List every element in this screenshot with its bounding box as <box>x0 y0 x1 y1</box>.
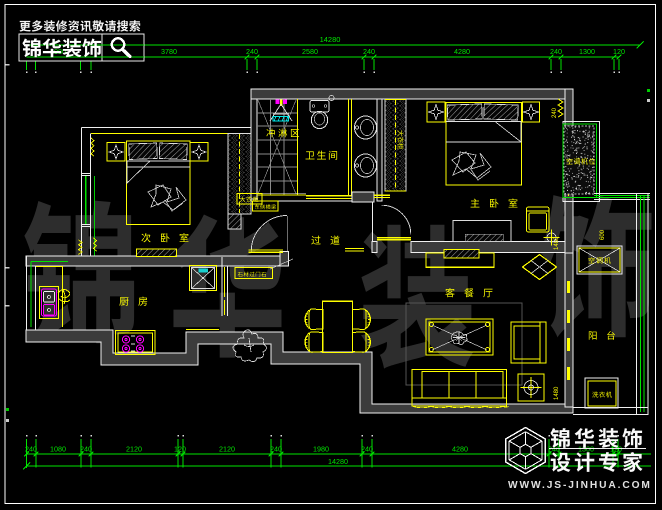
svg-text:120: 120 <box>613 47 625 56</box>
svg-text:240: 240 <box>361 445 373 454</box>
svg-text:2120: 2120 <box>219 445 235 454</box>
svg-text:240: 240 <box>25 445 37 454</box>
svg-text:240: 240 <box>246 47 258 56</box>
svg-text:120: 120 <box>174 445 186 454</box>
svg-text:240: 240 <box>552 107 558 118</box>
svg-text:WWW.JS-JINHUA.COM: WWW.JS-JINHUA.COM <box>508 480 652 491</box>
svg-text:14280: 14280 <box>328 457 348 466</box>
svg-text:2120: 2120 <box>126 445 142 454</box>
svg-text:4280: 4280 <box>454 47 470 56</box>
svg-text:3780: 3780 <box>161 47 177 56</box>
svg-text:240: 240 <box>363 47 375 56</box>
svg-text:240: 240 <box>80 445 92 454</box>
svg-text:600: 600 <box>600 229 606 240</box>
svg-text:240: 240 <box>550 47 562 56</box>
svg-text:14280: 14280 <box>320 35 341 44</box>
svg-text:1480: 1480 <box>554 386 560 400</box>
svg-text:240: 240 <box>270 445 282 454</box>
svg-text:1480: 1480 <box>554 236 560 250</box>
svg-text:1080: 1080 <box>50 445 66 454</box>
svg-text:1300: 1300 <box>579 47 595 56</box>
svg-text:1980: 1980 <box>313 445 329 454</box>
svg-text:4280: 4280 <box>452 445 468 454</box>
svg-text:2580: 2580 <box>302 47 318 56</box>
